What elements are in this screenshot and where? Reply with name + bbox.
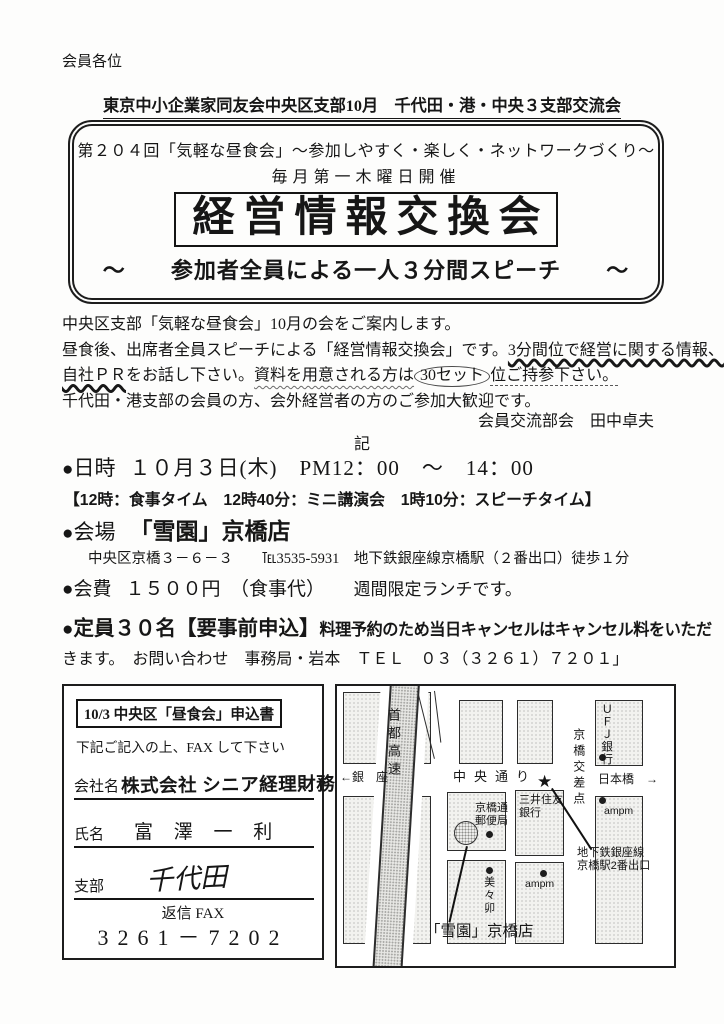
capacity-contact-line: きます。 お問い合わせ 事務局・岩本 ＴＥＬ ０３（３２６１）７２０１」 [62, 645, 628, 669]
subway-exit-label: 地下鉄銀座線 京橋駅2番出口 [577, 847, 650, 873]
fee-note: 週間限定ランチです。 [354, 580, 522, 599]
bullet-icon: ● [62, 619, 73, 640]
name-value-handwritten: 富 澤 一 利 [134, 817, 280, 846]
datetime-value: １０月３日(木) PM12：00 ～ 14：00 [129, 456, 533, 480]
reply-fax-number: 3261－7202 [64, 920, 322, 952]
map-block [459, 700, 503, 764]
fax-application-form: 10/3 中央区「昼食会」申込書 下記ご記入の上、FAX して下さい 会社名 株… [62, 684, 324, 960]
form-instruction: 下記ご記入の上、FAX して下さい [76, 736, 285, 756]
mimiu-label: 美々卯 [482, 876, 495, 915]
nihonbashi-direction-label: 日本橋 → [598, 773, 658, 787]
post-office-dot [486, 831, 493, 838]
post-office-label: 京橋通 郵便局 [475, 802, 508, 827]
document-heading: 東京中小企業家同友会中央区支部10月 千代田・港・中央３支部交流会 [0, 92, 724, 116]
bullet-icon: ● [62, 523, 73, 544]
ramp-line [434, 691, 441, 743]
access-map: ←銀 座 首都高速 中央通り ★ 京橋交差点 ＵＦＪ銀行 日本橋 → ampm … [335, 684, 676, 968]
bullet-icon: ● [62, 459, 73, 480]
datetime-line: ●日時１０月３日(木) PM12：00 ～ 14：00 [62, 452, 534, 482]
chuo-dori-label: 中央通り [453, 770, 537, 785]
banner-subtitle-2: 毎月第一木曜日開催 [74, 163, 658, 187]
handwritten-dotted-underline: 位ご持参下さい。 [490, 367, 618, 384]
datetime-label: 日時 [73, 456, 115, 480]
capacity-note: 料理予約のため当日キャンセルはキャンセル料をいただ [319, 621, 711, 639]
paragraph-line-3: 自社ＰＲをお話し下さい。資料を用意される方は30セット位ご持参下さい。 [62, 363, 724, 389]
event-banner-box: 第２０４回「気軽な昼食会」～参加しやすく・楽しく・ネットワークづくり～ 毎月第一… [68, 120, 664, 304]
company-label: 会社名 [74, 775, 119, 798]
paragraph-line-1: 中央区支部「気軽な昼食会」10月の会をご案内します。 [62, 312, 724, 338]
document-heading-text: 東京中小企業家同友会中央区支部10月 千代田・港・中央３支部交流会 [103, 97, 621, 119]
fee-line: ●会費１５００円 （食事代） 週間限定ランチです。 [62, 574, 522, 601]
ampm-label: ampm [525, 878, 554, 890]
mimiu-dot [486, 867, 493, 874]
company-value-handwritten: 株式会社 シニア経理財務 [121, 770, 335, 799]
handwritten-circle-mark: 30セット [414, 366, 490, 387]
paragraph-line-2: 昼食後、出席者全員スピーチによる「経営情報交換会」です。3分間位で経営に関する情… [62, 338, 724, 364]
recipient-line: 会員各位 [62, 50, 122, 71]
branch-value-handwritten: 千代田 [145, 855, 228, 900]
event-title: 経営情報交換会 [174, 192, 557, 247]
expressway-label: 首都高速 [385, 708, 400, 780]
venue-map-label: 「雪園」京橋店 [425, 923, 534, 941]
map-block [517, 700, 553, 764]
capacity-line: ●定員３０名【要事前申込】料理予約のため当日キャンセルはキャンセル料をいただ [62, 611, 712, 641]
banner-speech-line: ～ 参加者全員による一人３分間スピーチ ～ [74, 253, 658, 285]
ampm-dot [599, 797, 606, 804]
handwritten-light-underline: 資料を用意される方は [254, 367, 414, 384]
venue-address: 中央区京橋３－６－３ ℡3535-5931 地下鉄銀座線京橋駅（２番出口）徒歩１… [88, 547, 629, 568]
branch-field: 支部 千代田 [74, 854, 314, 900]
form-title: 10/3 中央区「昼食会」申込書 [76, 699, 282, 728]
ampm-label: ampm [604, 805, 633, 817]
speech-text: 参加者全員による一人３分間スピーチ [133, 258, 599, 283]
fee-label: 会費 [73, 579, 111, 600]
schedule-line: 【12時：食事タイム 12時40分：ミニ講演会 1時10分：スピーチタイム】 [64, 487, 601, 510]
ampm-dot [540, 870, 547, 877]
company-field: 会社名 株式会社 シニア経理財務 [74, 762, 314, 800]
mitsui-bank-label: 三井住友 銀行 [519, 794, 563, 819]
tilde-right: ～ [606, 258, 629, 283]
handwritten-wavy-underline: 自社ＰＲ [62, 367, 126, 384]
kyobashi-crossing-label: 京橋交差点 [571, 728, 585, 808]
star-marker: ★ [537, 772, 552, 792]
venue-line: ●会場「雪園」京橋店 [62, 512, 290, 546]
body-paragraph: 中央区支部「気軽な昼食会」10月の会をご案内します。 昼食後、出席者全員スピーチ… [62, 312, 724, 414]
capacity-label: 定員３０名【要事前申込】 [73, 618, 319, 640]
signature-line: 会員交流部会 田中卓夫 [62, 407, 654, 431]
bullet-icon: ● [62, 579, 73, 600]
venue-value: 「雪園」京橋店 [129, 519, 290, 544]
branch-label: 支部 [74, 875, 104, 898]
banner-subtitle-1: 第２０４回「気軽な昼食会」～参加しやすく・楽しく・ネットワークづくり～ [74, 137, 658, 161]
name-field: 氏名 富 澤 一 利 [74, 810, 314, 848]
name-label: 氏名 [74, 823, 104, 846]
handwritten-wavy-underline: 3分間位で経営に関する情報、 [508, 342, 724, 359]
venue-label: 会場 [73, 520, 115, 544]
ufj-bank-label: ＵＦＪ銀行 [599, 703, 612, 766]
ginza-direction-label: ←銀 座 [340, 771, 388, 785]
tilde-left: ～ [103, 258, 126, 283]
ki-marker: 記 [0, 430, 724, 454]
fee-value: １５００円 （食事代） [126, 579, 354, 600]
fax-document-page: 会員各位 東京中小企業家同友会中央区支部10月 千代田・港・中央３支部交流会 第… [0, 0, 724, 1024]
